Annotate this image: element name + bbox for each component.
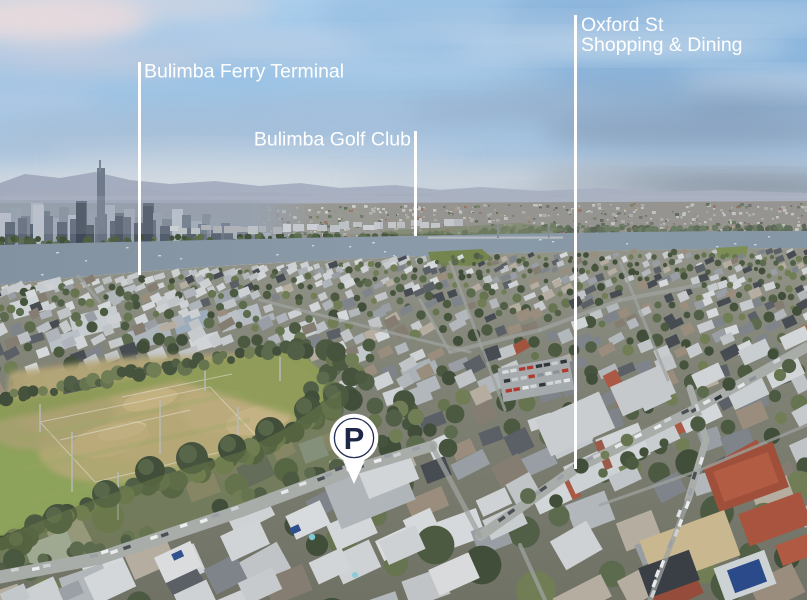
svg-text:Shopping & Dining: Shopping & Dining [581, 34, 743, 56]
svg-text:Bulimba Golf Club: Bulimba Golf Club [254, 129, 411, 151]
svg-text:P: P [344, 421, 365, 456]
svg-text:Bulimba Ferry Terminal: Bulimba Ferry Terminal [144, 61, 344, 83]
svg-text:Oxford St: Oxford St [581, 14, 664, 36]
